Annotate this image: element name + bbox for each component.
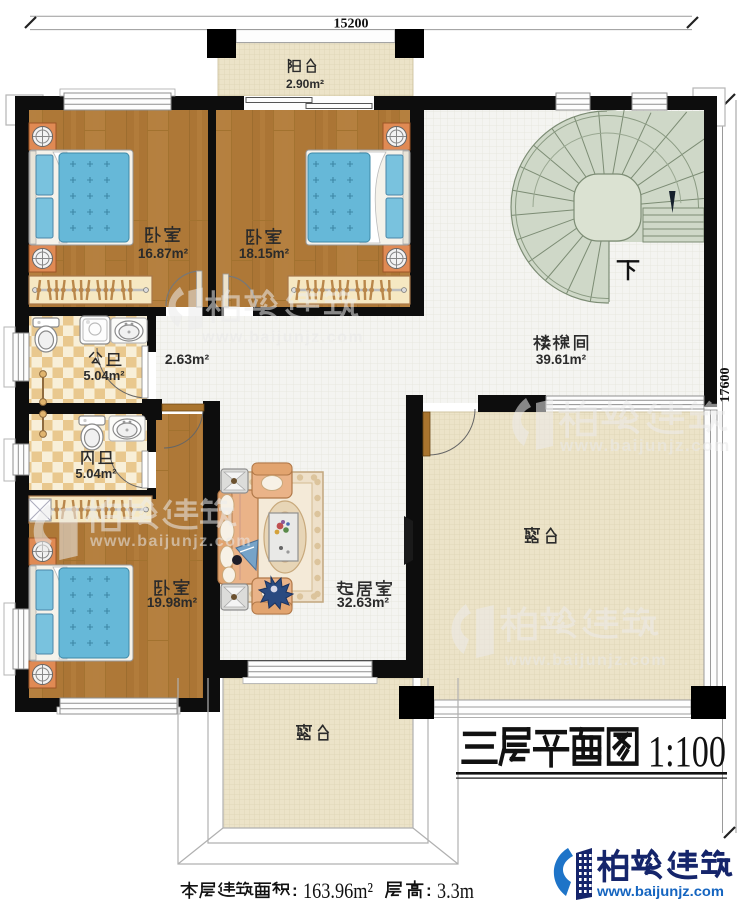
svg-text:18.15m²: 18.15m² [239,246,290,261]
svg-text:3.3m: 3.3m [437,878,474,903]
svg-text:5.04m²: 5.04m² [83,368,125,383]
svg-text:19.98m²: 19.98m² [147,595,198,610]
svg-text:www.baijunjz.com: www.baijunjz.com [559,436,731,455]
svg-text:www.baijunjz.com: www.baijunjz.com [504,652,667,669]
svg-text:www.baijunjz.com: www.baijunjz.com [596,883,724,899]
svg-text:1:100: 1:100 [648,727,726,776]
svg-text:16.87m²: 16.87m² [138,246,189,261]
svg-text:www.baijunjz.com: www.baijunjz.com [89,533,252,550]
svg-text:17600: 17600 [718,368,733,403]
svg-text:www.baijunjz.com: www.baijunjz.com [201,329,364,346]
svg-text:39.61m²: 39.61m² [536,352,587,367]
svg-text:163.96m²: 163.96m² [303,878,373,903]
svg-text:2.63m²: 2.63m² [165,351,210,367]
svg-text:5.04m²: 5.04m² [75,466,117,481]
svg-text::: : [426,881,432,900]
svg-text:2.90m²: 2.90m² [286,77,324,91]
svg-text:32.63m²: 32.63m² [337,594,389,610]
svg-text::: : [292,881,298,900]
